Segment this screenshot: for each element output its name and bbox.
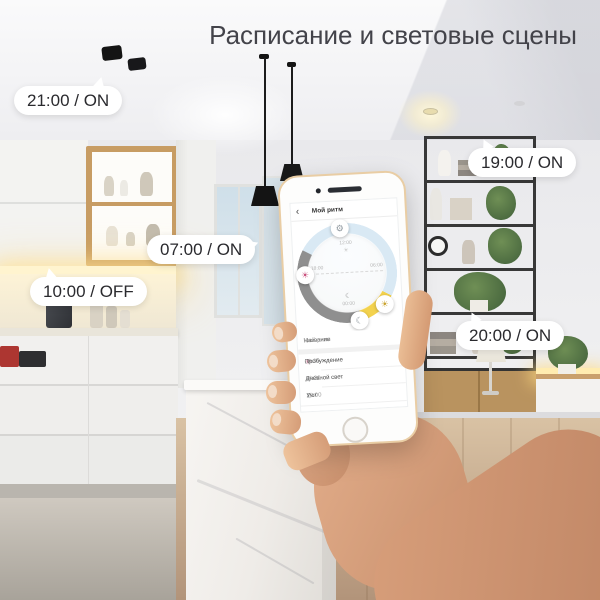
fingernail [268, 385, 277, 398]
schedule-callout-0700: 07:00 / ON [147, 235, 255, 264]
soffit-light [150, 75, 300, 155]
jar [106, 306, 117, 328]
shelf-board [427, 312, 533, 315]
vase [140, 172, 153, 196]
chevron-right-icon: › [309, 393, 312, 400]
page-title: Расписание и световые сцены [186, 20, 600, 51]
vase [438, 150, 451, 176]
ceiling-spotlight [127, 57, 146, 71]
callout-tail [93, 76, 107, 90]
clock [428, 236, 448, 256]
books [430, 332, 456, 354]
vase [106, 226, 118, 246]
chevron-right-icon: › [308, 376, 311, 383]
plant [486, 186, 516, 220]
drawer-gap [88, 336, 89, 484]
back-button[interactable]: ‹ [296, 205, 307, 220]
ceiling-spotlight [101, 45, 123, 61]
phone: ‹ Мой ритм 12:00 ☀ 18:00 06:00 ☾ 00:00 ⚙… [277, 170, 419, 448]
floor-left [0, 498, 190, 600]
pendant-lamp-cord [291, 66, 293, 164]
speaker-slot [328, 186, 362, 193]
chevron-right-icon: › [308, 359, 311, 366]
home-button[interactable] [342, 416, 369, 443]
toe-kick [0, 484, 178, 498]
finger [266, 381, 296, 404]
pendant-lamp-cord [264, 58, 266, 186]
table-lamp-base [482, 391, 499, 395]
shelf-board [427, 224, 533, 227]
recessed-light [514, 101, 525, 106]
shelf-board [427, 180, 533, 183]
schedule-callout-1000: 10:00 / OFF [30, 277, 147, 306]
countertop [0, 328, 178, 336]
fingernail [273, 326, 284, 340]
phone-screen: ‹ Мой ритм 12:00 ☀ 18:00 06:00 ☾ 00:00 ⚙… [289, 197, 408, 412]
upper-cabinets [0, 140, 88, 268]
plant [488, 228, 522, 264]
callout-tail [43, 267, 57, 280]
vase [126, 232, 135, 246]
shelf-board [427, 268, 533, 271]
table-lamp-stem [489, 362, 492, 392]
schedule-callout-1900: 19:00 / ON [468, 148, 576, 177]
plant-pot [470, 300, 488, 312]
decor-box [450, 198, 472, 220]
red-appliance [0, 346, 19, 367]
recessed-light [423, 108, 438, 115]
under-cabinet-light [0, 266, 176, 274]
app-header: ‹ Мой ритм [290, 198, 397, 222]
vase [120, 180, 128, 196]
app-title: Мой ритм [312, 206, 343, 215]
schedule-callout-2100: 21:00 / ON [14, 86, 122, 115]
bulb-icon[interactable]: ☀ [375, 295, 394, 314]
vase [462, 240, 475, 264]
camera-dot-icon [316, 188, 321, 193]
tall-cabinet [176, 140, 216, 388]
shelf-board [92, 202, 172, 206]
fingernail [272, 413, 282, 427]
moon-button-icon[interactable]: ☾ [350, 311, 369, 330]
shelf-board [427, 136, 533, 139]
fingernail [268, 354, 278, 368]
promo-scene: ‹ Мой ритм 12:00 ☀ 18:00 06:00 ☾ 00:00 ⚙… [0, 0, 600, 600]
sculpture [430, 188, 442, 220]
finger [269, 408, 302, 435]
jar [120, 310, 130, 328]
schedule-callout-2000: 20:00 / ON [456, 321, 564, 350]
vase [104, 176, 114, 196]
dial-time-right: 06:00 [370, 262, 383, 269]
black-appliance [19, 351, 46, 367]
chevron-right-icon: › [306, 338, 309, 345]
